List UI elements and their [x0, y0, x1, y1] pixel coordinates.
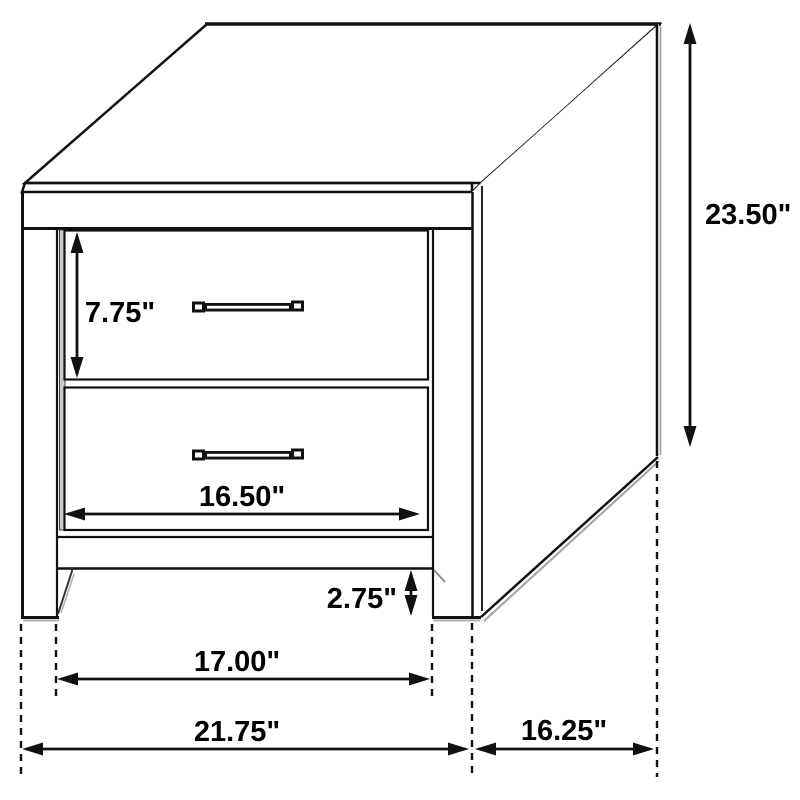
dimension-base-height: 2.75" — [327, 570, 418, 616]
dimension-label-overall-width: 21.75" — [194, 716, 280, 748]
dimension-label-leg-span: 17.00" — [194, 646, 280, 678]
dimension-depth: 16.25" — [475, 715, 654, 756]
nightstand-dimension-diagram: 7.75" 16.50" 2.75" 17.00" 21.75" 16.25" — [0, 0, 800, 800]
dimension-overall-width: 21.75" — [22, 716, 469, 756]
dimension-label-drawer-height: 7.75" — [85, 297, 155, 329]
dimension-leg-span: 17.00" — [57, 646, 430, 686]
dimension-label-overall-height: 23.50" — [705, 199, 791, 231]
nightstand-front-face — [21, 192, 481, 621]
dimension-label-depth: 16.25" — [521, 715, 607, 747]
dimension-overall-height: 23.50" — [684, 23, 792, 447]
nightstand-side-panel — [472, 24, 661, 621]
diagram-canvas: 7.75" 16.50" 2.75" 17.00" 21.75" 16.25" — [0, 0, 800, 800]
front-left-leg — [21, 568, 74, 621]
dimension-label-drawer-width: 16.50" — [199, 481, 285, 513]
dimension-label-base-height: 2.75" — [327, 583, 397, 615]
